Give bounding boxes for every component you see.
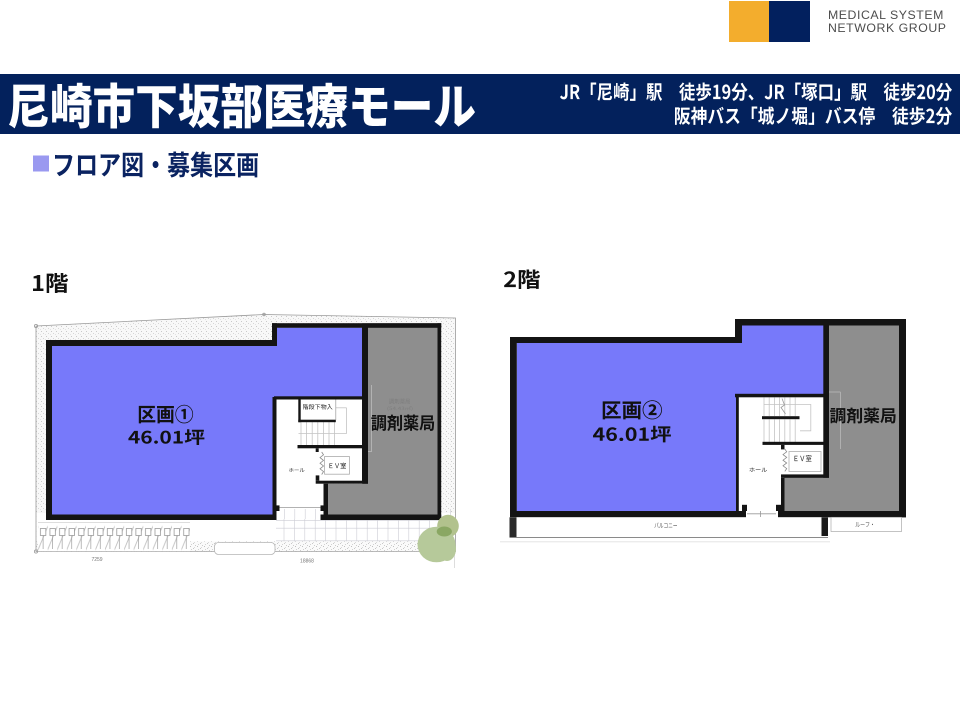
svg-text:7259: 7259 xyxy=(91,557,102,563)
svg-text:18868: 18868 xyxy=(300,559,314,565)
